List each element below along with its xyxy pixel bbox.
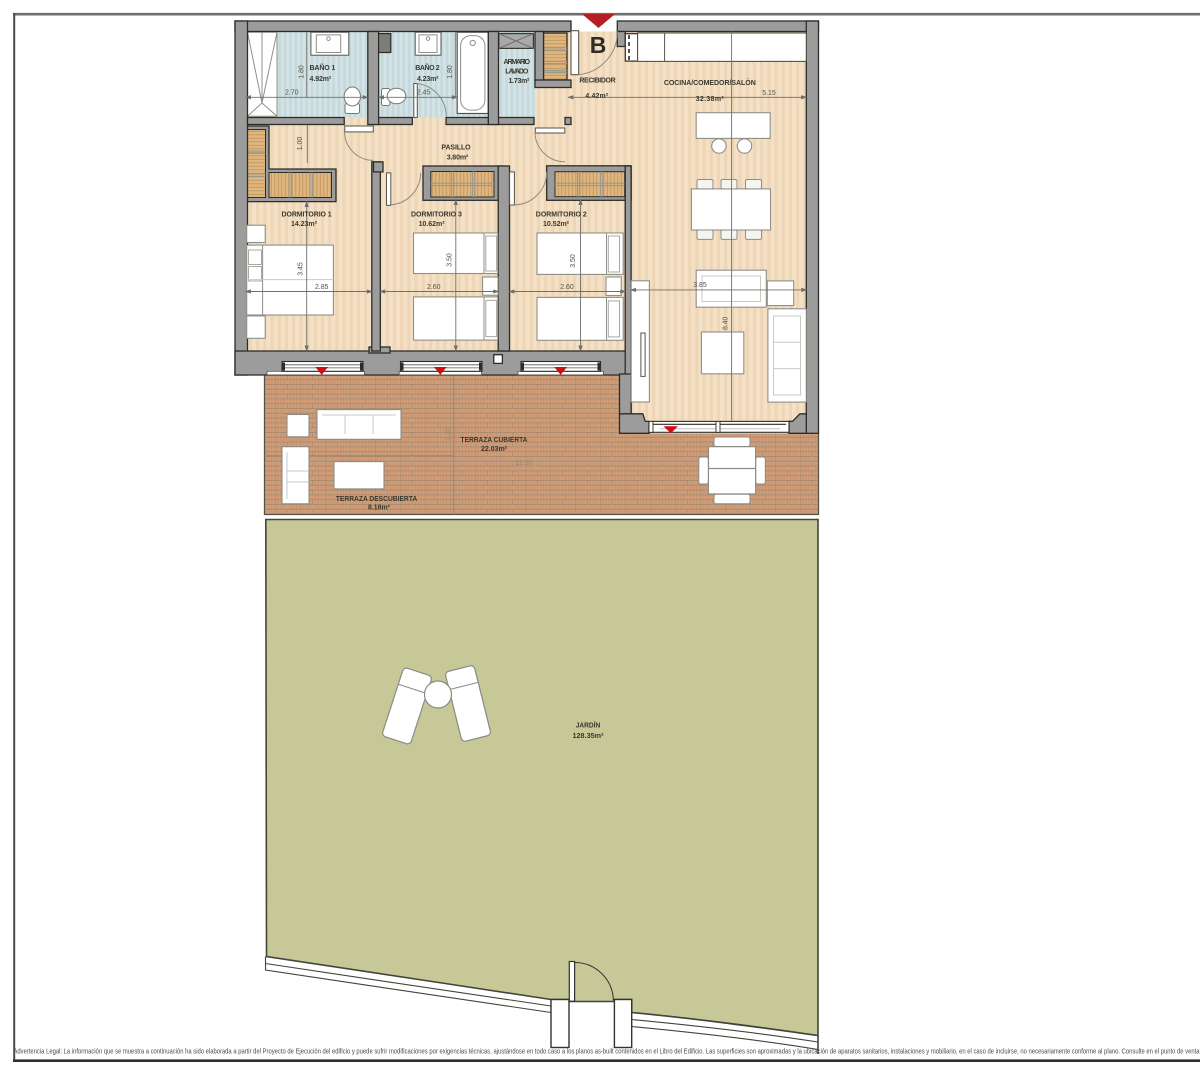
svg-text:4.23m²: 4.23m² (417, 76, 439, 83)
svg-text:PASILLO: PASILLO (441, 144, 471, 151)
svg-text:3.80m²: 3.80m² (447, 154, 469, 161)
svg-text:TERRAZA CUBIERTA: TERRAZA CUBIERTA (461, 437, 528, 444)
svg-text:Advertencia Legal: La informac: Advertencia Legal: La información que se… (14, 1047, 1200, 1056)
svg-text:11.90: 11.90 (515, 458, 533, 467)
svg-text:1.80: 1.80 (447, 65, 454, 79)
svg-text:BAÑO 2: BAÑO 2 (415, 63, 439, 72)
svg-text:2.45: 2.45 (417, 90, 431, 97)
svg-text:2.60: 2.60 (427, 284, 441, 291)
svg-text:1.00: 1.00 (297, 137, 304, 151)
svg-text:LAVADO: LAVADO (505, 69, 529, 76)
svg-text:DORMITORIO 1: DORMITORIO 1 (282, 212, 332, 219)
svg-text:BAÑO 1: BAÑO 1 (310, 63, 336, 72)
svg-text:ARMARIO: ARMARIO (504, 59, 531, 66)
svg-text:B: B (590, 32, 607, 58)
svg-text:3.85: 3.85 (693, 282, 707, 289)
svg-text:1.73m²: 1.73m² (509, 78, 531, 85)
svg-text:DORMITORIO 3: DORMITORIO 3 (411, 212, 462, 219)
svg-text:128.35m²: 128.35m² (573, 733, 605, 740)
svg-text:JARDÍN: JARDÍN (576, 721, 601, 730)
svg-text:4.92m²: 4.92m² (310, 76, 332, 83)
svg-text:COCINA/COMEDOR/SALÓN: COCINA/COMEDOR/SALÓN (664, 78, 756, 87)
svg-text:4.42m²: 4.42m² (585, 93, 609, 100)
svg-text:32.38m²: 32.38m² (696, 96, 725, 103)
svg-text:3.50: 3.50 (447, 253, 454, 267)
svg-text:3.45: 3.45 (297, 262, 304, 276)
svg-text:8.18m²: 8.18m² (368, 505, 391, 512)
svg-text:2.60: 2.60 (560, 284, 574, 291)
svg-text:1.30: 1.30 (443, 427, 452, 441)
svg-text:TERRAZA DESCUBIERTA: TERRAZA DESCUBIERTA (336, 496, 417, 503)
svg-text:2.70: 2.70 (285, 90, 299, 97)
svg-text:10.52m²: 10.52m² (543, 221, 570, 228)
svg-text:14.23m²: 14.23m² (291, 221, 318, 228)
svg-text:DORMITORIO 2: DORMITORIO 2 (536, 211, 587, 218)
svg-text:10.62m²: 10.62m² (419, 221, 446, 228)
svg-text:1.80: 1.80 (298, 65, 305, 79)
svg-text:2.85: 2.85 (315, 284, 329, 291)
svg-text:3.50: 3.50 (570, 254, 577, 268)
svg-text:RECIBIDOR: RECIBIDOR (579, 78, 615, 85)
svg-text:5.15: 5.15 (762, 90, 776, 97)
svg-text:8.40: 8.40 (723, 316, 730, 330)
svg-text:22.03m²: 22.03m² (481, 446, 508, 453)
